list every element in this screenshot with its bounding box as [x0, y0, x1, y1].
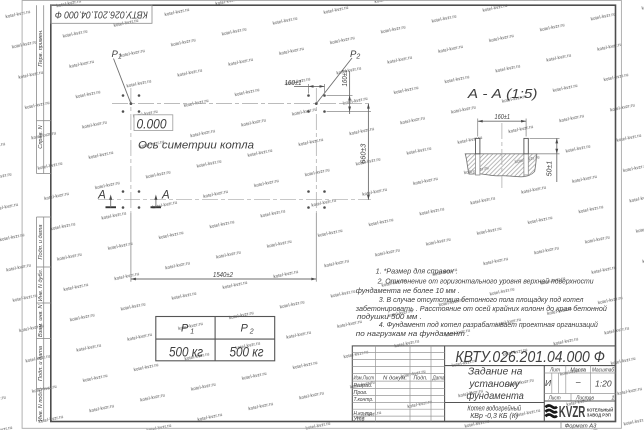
svg-text:установку: установку	[468, 378, 520, 390]
svg-text:1:20: 1:20	[595, 378, 612, 388]
svg-text:–: –	[575, 377, 581, 387]
svg-text:0.000: 0.000	[137, 116, 167, 131]
svg-text:N докум.: N докум.	[383, 375, 407, 381]
svg-text:1540±2: 1540±2	[213, 270, 233, 279]
svg-text:Лит: Лит	[549, 368, 560, 374]
svg-text:КВТУ.026.201.04.000 Ф: КВТУ.026.201.04.000 Ф	[455, 349, 605, 366]
svg-text:Т.контр.: Т.контр.	[354, 397, 374, 403]
svg-text:Масса: Масса	[570, 368, 587, 374]
svg-text:2. Отклонение от горизонтально: 2. Отклонение от горизонтального уровня …	[377, 277, 594, 286]
svg-text:1. *Размер для справок .: 1. *Размер для справок .	[376, 266, 458, 275]
svg-text:Изм.Лист: Изм.Лист	[354, 375, 375, 381]
svg-text:Справ. N: Справ. N	[38, 124, 44, 148]
svg-text:ЗАВОД РЭП: ЗАВОД РЭП	[587, 413, 611, 418]
svg-text:А: А	[161, 189, 170, 201]
svg-text:Подп. и дата: Подп. и дата	[38, 346, 44, 381]
svg-text:Инв. N дубл.: Инв. N дубл.	[38, 269, 44, 301]
svg-text:по нагрузкам на фундамент .: по нагрузкам на фундамент .	[356, 329, 470, 338]
svg-text:1: 1	[611, 395, 614, 401]
svg-text:Взам. инв. N: Взам. инв. N	[38, 303, 44, 337]
svg-text:Дата: Дата	[432, 375, 445, 381]
svg-text:Подп.: Подп.	[414, 375, 428, 381]
svg-text:А - А (1:5): А - А (1:5)	[467, 87, 538, 101]
svg-text:660±3: 660±3	[358, 144, 367, 164]
svg-text:Ось симетрии котла: Ось симетрии котла	[138, 139, 254, 151]
svg-text:Разраб.: Разраб.	[354, 383, 373, 389]
svg-text:50±1: 50±1	[546, 161, 553, 177]
svg-text:Масштаб: Масштаб	[592, 368, 615, 374]
svg-text:Лист: Лист	[548, 395, 561, 401]
svg-text:KVZR: KVZR	[559, 404, 586, 421]
svg-text:И: И	[545, 378, 552, 388]
svg-text:Задание на: Задание на	[468, 366, 523, 378]
svg-text:Утв: Утв	[353, 416, 365, 422]
svg-text:Пров.: Пров.	[354, 390, 368, 396]
svg-text:160±1: 160±1	[495, 114, 511, 121]
svg-text:Перв. примен.: Перв. примен.	[38, 29, 44, 66]
svg-text:фундамента: фундамента	[467, 390, 524, 402]
svg-text:Котел водогрейный: Котел водогрейный	[467, 405, 521, 413]
svg-text:Подп. и дата: Подп. и дата	[38, 224, 44, 259]
svg-text:Инв. N подл.: Инв. N подл.	[38, 389, 44, 422]
svg-text:500 кг: 500 кг	[169, 343, 203, 359]
svg-text:фундамента не более 10 мм .: фундамента не более 10 мм .	[356, 286, 460, 295]
svg-text:3. В случае отсутствия бетонно: 3. В случае отсутствия бетонного пола пл…	[379, 295, 584, 304]
svg-text:4. Фундамент под котел разраба: 4. Фундамент под котел разрабатывает про…	[379, 320, 598, 329]
svg-text:А: А	[97, 189, 106, 201]
svg-text:Листов: Листов	[575, 395, 594, 401]
svg-text:КВТУ.026.201.04.000 Ф: КВТУ.026.201.04.000 Ф	[55, 8, 148, 20]
svg-text:500 кг: 500 кг	[230, 343, 264, 359]
svg-text:160±1: 160±1	[285, 80, 302, 87]
svg-text:160±1: 160±1	[342, 69, 349, 86]
svg-text:Формат А3: Формат А3	[565, 424, 597, 430]
svg-text:КВр -0,3 КБ (К): КВр -0,3 КБ (К)	[470, 413, 518, 420]
